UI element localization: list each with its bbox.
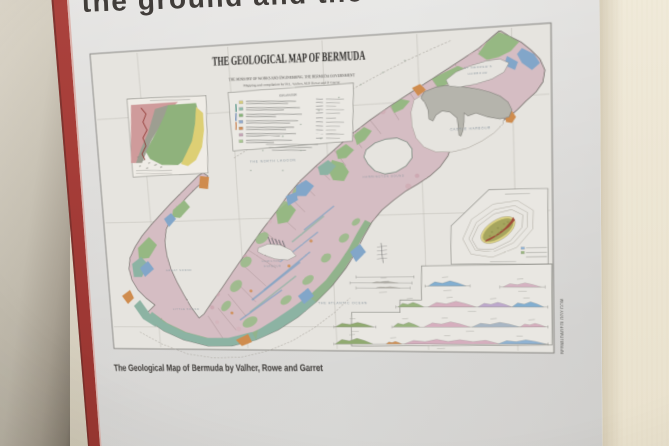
svg-text:HARBOUR: HARBOUR	[264, 265, 282, 268]
svg-text:LITTLE SOUND: LITTLE SOUND	[173, 307, 200, 311]
svg-text:THE ATLANTIC OCEAN: THE ATLANTIC OCEAN	[318, 301, 368, 305]
svg-text:BERMUDAGEOLOGY.COM: BERMUDAGEOLOGY.COM	[560, 299, 565, 354]
svg-text:The Geological Map of Bermuda: The Geological Map of Bermuda by Valher,…	[113, 363, 323, 374]
svg-text:GREAT SOUND: GREAT SOUND	[166, 268, 192, 272]
svg-text:HAMILTON: HAMILTON	[262, 260, 281, 263]
